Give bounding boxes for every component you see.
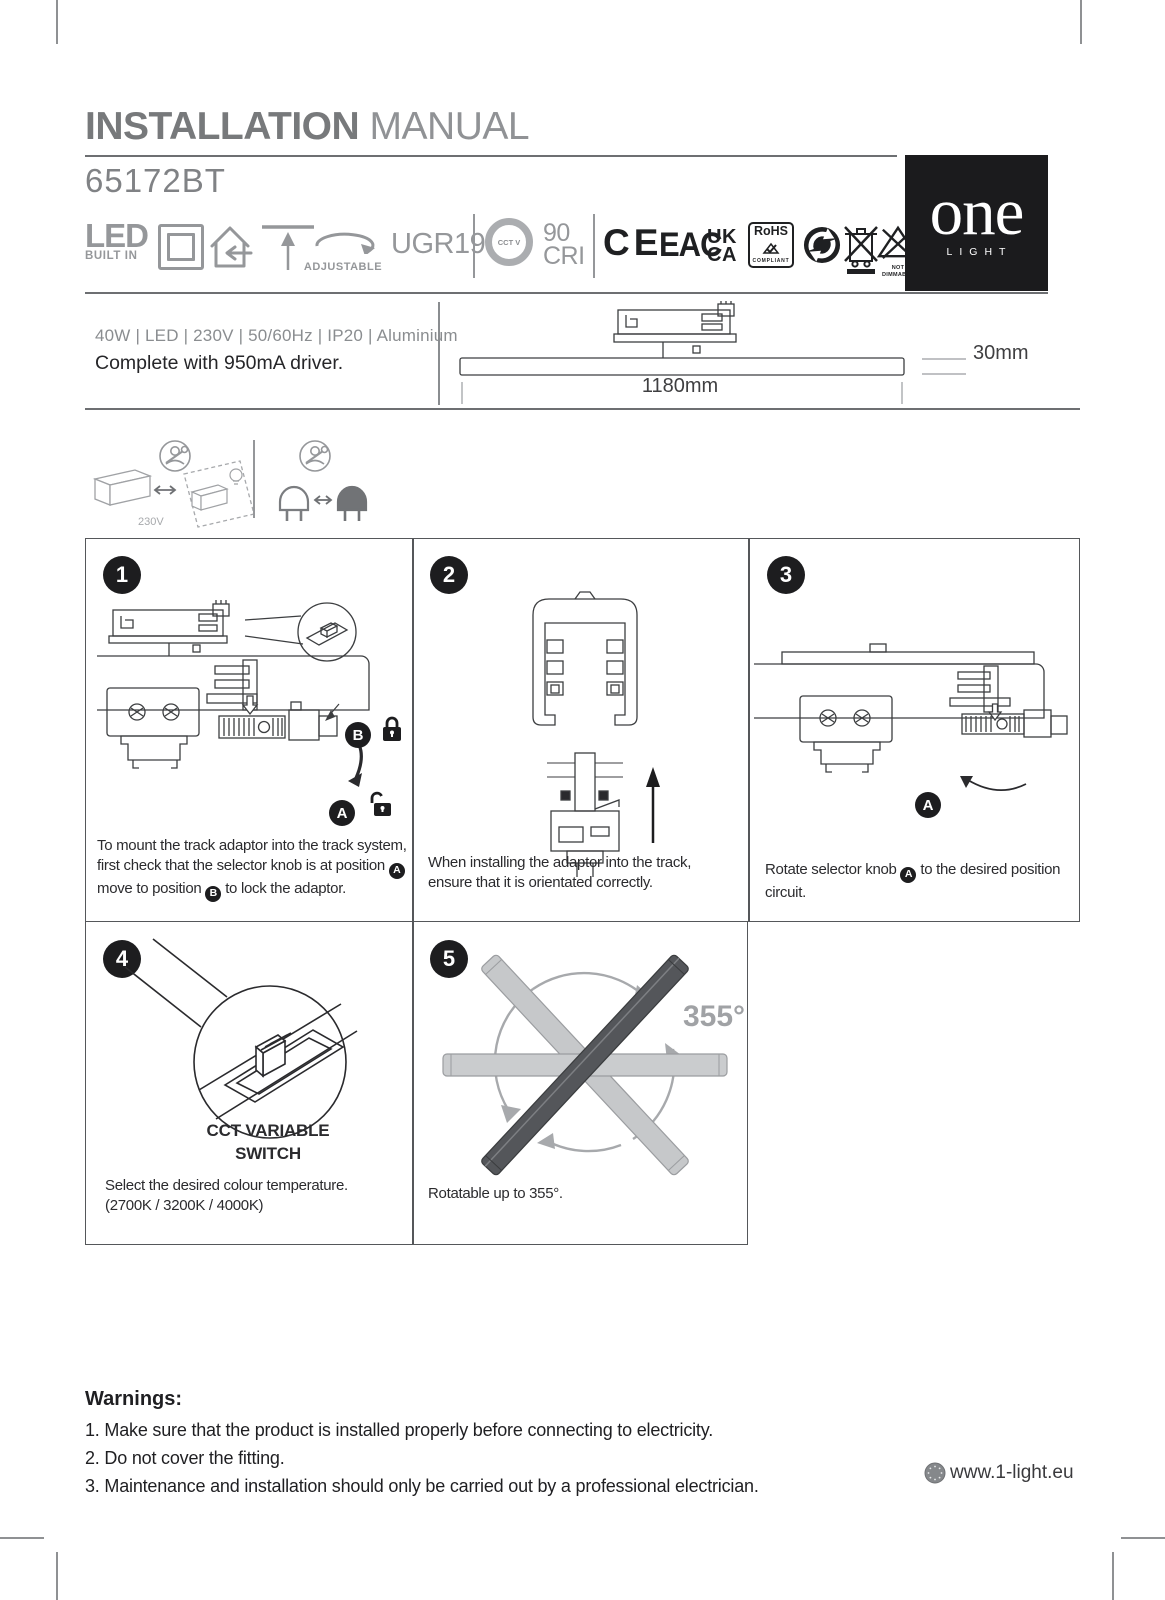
crop-mark bbox=[1112, 1552, 1114, 1600]
manual-page: INSTALLATION MANUAL 65172BT LED BUILT IN bbox=[0, 0, 1165, 1600]
title-bold: INSTALLATION bbox=[85, 105, 359, 148]
indoor-house-icon bbox=[207, 220, 255, 274]
warning-item: 3. Maintenance and installation should o… bbox=[85, 1476, 759, 1497]
spec-line: 40W | LED | 230V | 50/60Hz | IP20 | Alum… bbox=[95, 326, 458, 346]
step4-text: Select the desired colour temperature. (… bbox=[105, 1176, 405, 1216]
cct-switch-caption: CCT VARIABLE SWITCH bbox=[148, 1120, 388, 1166]
rohs-check-icon bbox=[762, 241, 780, 255]
crop-mark bbox=[0, 1537, 44, 1539]
ce-mark: CE bbox=[603, 222, 662, 264]
warning-item: 2. Do not cover the fitting. bbox=[85, 1448, 285, 1469]
step2-number: 2 bbox=[430, 556, 468, 594]
driver-note: Complete with 950mA driver. bbox=[95, 352, 343, 375]
crop-mark bbox=[1121, 1537, 1165, 1539]
spec-divider bbox=[438, 302, 440, 405]
cri-mark: 90 CRI bbox=[543, 222, 585, 268]
step4-cct-switch-diagram bbox=[95, 925, 415, 1145]
driver-replacement-pictogram bbox=[88, 430, 258, 530]
step1-text: To mount the track adaptor into the trac… bbox=[97, 836, 415, 902]
divider bbox=[473, 214, 475, 278]
safety-divider bbox=[253, 440, 255, 518]
rotation-angle-label: 355° bbox=[683, 1000, 745, 1034]
crop-mark bbox=[1080, 0, 1082, 44]
title-light: MANUAL bbox=[370, 105, 530, 148]
step1-position-a-badge: A bbox=[329, 800, 355, 826]
step2-text: When installing the adaptor into the tra… bbox=[428, 853, 733, 893]
brand-name: one bbox=[930, 182, 1024, 242]
rotation-arrow-icon bbox=[305, 220, 381, 254]
step5-text: Rotatable up to 355°. bbox=[428, 1184, 728, 1204]
rohs-compliant-label: COMPLIANT bbox=[753, 259, 790, 264]
step3-position-a-badge: A bbox=[915, 792, 941, 818]
height-dimension: 30mm bbox=[973, 342, 1029, 365]
inline-badge-a: A bbox=[389, 863, 405, 879]
open-padlock-icon bbox=[364, 788, 394, 820]
led-replacement-pictogram bbox=[262, 430, 382, 530]
rohs-mark: RoHS COMPLIANT bbox=[748, 222, 794, 268]
step3-number: 3 bbox=[767, 556, 805, 594]
rohs-label: RoHS bbox=[754, 225, 788, 238]
title-rule bbox=[85, 155, 897, 157]
globe-icon bbox=[924, 1462, 946, 1484]
ukca-mark: UK CA bbox=[707, 228, 737, 265]
green-dot-icon bbox=[803, 226, 841, 264]
inline-badge-b: B bbox=[205, 886, 221, 902]
led-built-in-mark: LED BUILT IN bbox=[85, 222, 148, 262]
warning-item: 1. Make sure that the product is install… bbox=[85, 1420, 713, 1441]
product-code: 65172BT bbox=[85, 162, 226, 200]
divider bbox=[593, 214, 595, 278]
cct-label: CCT V bbox=[498, 238, 521, 247]
one-light-logo: one LIGHT bbox=[905, 155, 1048, 291]
voltage-label: 230V bbox=[138, 516, 164, 528]
inline-badge-a: A bbox=[900, 867, 916, 883]
adjustable-label: ADJUSTABLE bbox=[303, 261, 383, 273]
specs-bottom-rule bbox=[85, 408, 1080, 410]
website-link[interactable]: www.1-light.eu bbox=[950, 1462, 1074, 1484]
icons-rule bbox=[85, 292, 1048, 294]
step1-position-b-badge: B bbox=[345, 722, 371, 748]
step1-track-adaptor-diagram bbox=[95, 598, 400, 843]
grid-divider bbox=[748, 538, 750, 922]
length-dimension: 1180mm bbox=[620, 375, 740, 398]
cri-label: CRI bbox=[543, 245, 585, 268]
ugr-mark: UGR19 bbox=[391, 228, 485, 261]
page-title: INSTALLATION MANUAL bbox=[85, 106, 529, 149]
step3-rotate-knob-diagram bbox=[752, 630, 1077, 830]
crop-mark bbox=[56, 0, 58, 44]
warnings-title: Warnings: bbox=[85, 1388, 182, 1411]
recessed-square-icon bbox=[158, 224, 204, 270]
adjustable-mark: ADJUSTABLE bbox=[303, 220, 383, 273]
step1-number: 1 bbox=[103, 556, 141, 594]
step3-text: Rotate selector knob A to the desired po… bbox=[765, 860, 1075, 903]
weee-bin-icon bbox=[844, 220, 878, 276]
led-label: LED bbox=[85, 222, 148, 250]
step5-rotation-diagram bbox=[425, 925, 755, 1195]
crop-mark bbox=[56, 1552, 58, 1600]
brand-sub: LIGHT bbox=[947, 246, 1013, 258]
step2-track-cross-section-diagram bbox=[495, 585, 685, 877]
cct-variable-mark: CCT V bbox=[485, 218, 533, 266]
certification-icons-row: LED BUILT IN ADJUSTABLE UGR19 bbox=[85, 210, 897, 290]
closed-padlock-icon bbox=[380, 714, 404, 744]
